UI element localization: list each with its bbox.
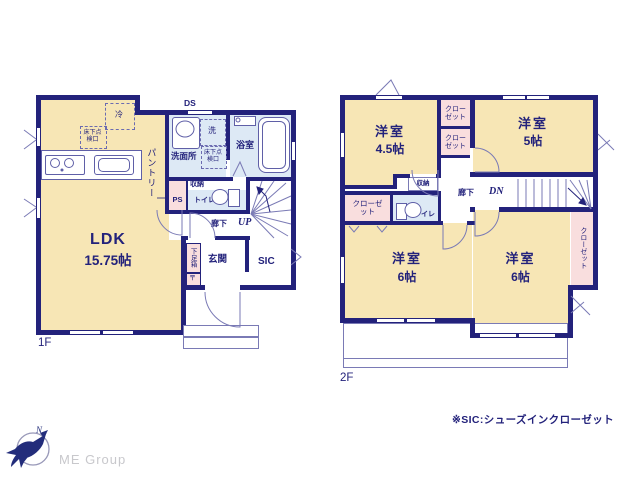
door-arc-room6b: [475, 212, 499, 236]
toilet-bowl-1f-icon: [212, 190, 228, 205]
stairs-1f-treads: [251, 181, 291, 238]
floorplan-page: 冷 床下点検口 洗 床下点検口 下足箱 〒 LDK 15.75帖 パントリー D…: [0, 0, 640, 480]
door-arc-ldk: [157, 210, 182, 235]
burner-icon: [51, 159, 60, 168]
door-arc-room45: [412, 170, 438, 196]
logo: N: [6, 425, 49, 468]
door-arc-room5: [475, 148, 499, 172]
vent-mark-1f-left-upper: [24, 130, 36, 149]
door-arc-front-door: [205, 292, 240, 327]
plan-linework: N: [0, 0, 640, 480]
closet-door-marks: [349, 226, 387, 232]
burner-icon: [65, 159, 74, 168]
vent-mark-1f-left-lower: [24, 199, 36, 217]
bath-folding-door: [233, 162, 246, 176]
vent-mark-2f-right-lower: [571, 296, 590, 315]
door-arc-hall-entrance: [190, 213, 215, 238]
fixture-details: [51, 118, 422, 232]
bath-faucet-icon: [236, 118, 240, 122]
door-arcs: [157, 148, 499, 327]
door-arc-room6a: [443, 225, 467, 249]
basin-icon: [176, 121, 194, 137]
toilet-bowl-2f-icon: [405, 203, 421, 218]
vent-mark-2f-top: [376, 80, 399, 95]
vent-mark-2f-right-upper: [598, 134, 614, 150]
vent-mark-1f-sic: [291, 249, 301, 265]
stairs-2f-treads: [518, 179, 591, 209]
burner-knob: [61, 169, 64, 172]
compass-north-label: N: [35, 425, 43, 435]
